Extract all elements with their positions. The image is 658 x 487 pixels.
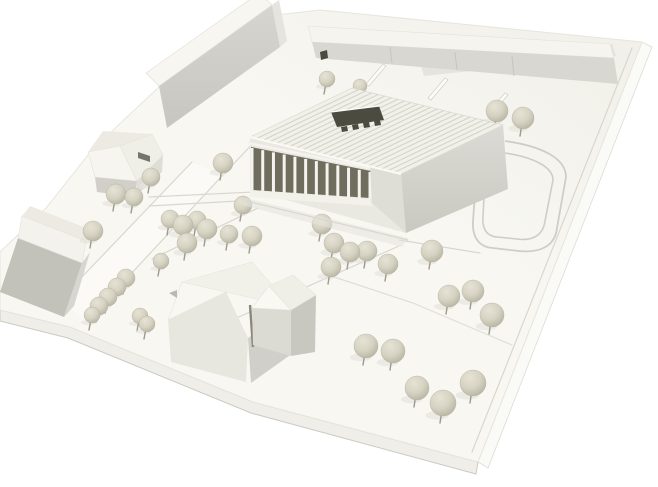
tree <box>177 233 197 253</box>
tree <box>220 225 238 243</box>
tree <box>213 153 233 173</box>
tree <box>405 376 429 400</box>
roof-opening-tooth <box>352 124 359 130</box>
tree <box>153 253 169 269</box>
roof-opening-tooth <box>363 122 370 128</box>
tree <box>438 285 460 307</box>
tree <box>83 221 103 241</box>
tree <box>139 316 155 332</box>
tree <box>242 226 262 246</box>
tree <box>340 242 360 262</box>
tree <box>321 257 341 277</box>
roof-opening-tooth <box>374 120 381 126</box>
tree <box>319 71 335 87</box>
roof-opening-tooth <box>341 126 348 132</box>
tree <box>381 339 405 363</box>
tree <box>354 334 378 358</box>
tree <box>430 390 456 416</box>
model-photo <box>0 0 658 487</box>
tree <box>173 215 193 235</box>
tree <box>84 307 100 323</box>
tree <box>462 280 484 302</box>
tree <box>486 100 508 122</box>
site-model-scene <box>0 0 658 487</box>
tree <box>378 254 398 274</box>
tree <box>421 240 443 262</box>
tree <box>106 184 126 204</box>
tree <box>197 219 217 239</box>
tree <box>460 370 486 396</box>
tree <box>512 107 534 129</box>
tree <box>125 188 143 206</box>
tree <box>142 168 160 186</box>
tree <box>480 303 504 327</box>
